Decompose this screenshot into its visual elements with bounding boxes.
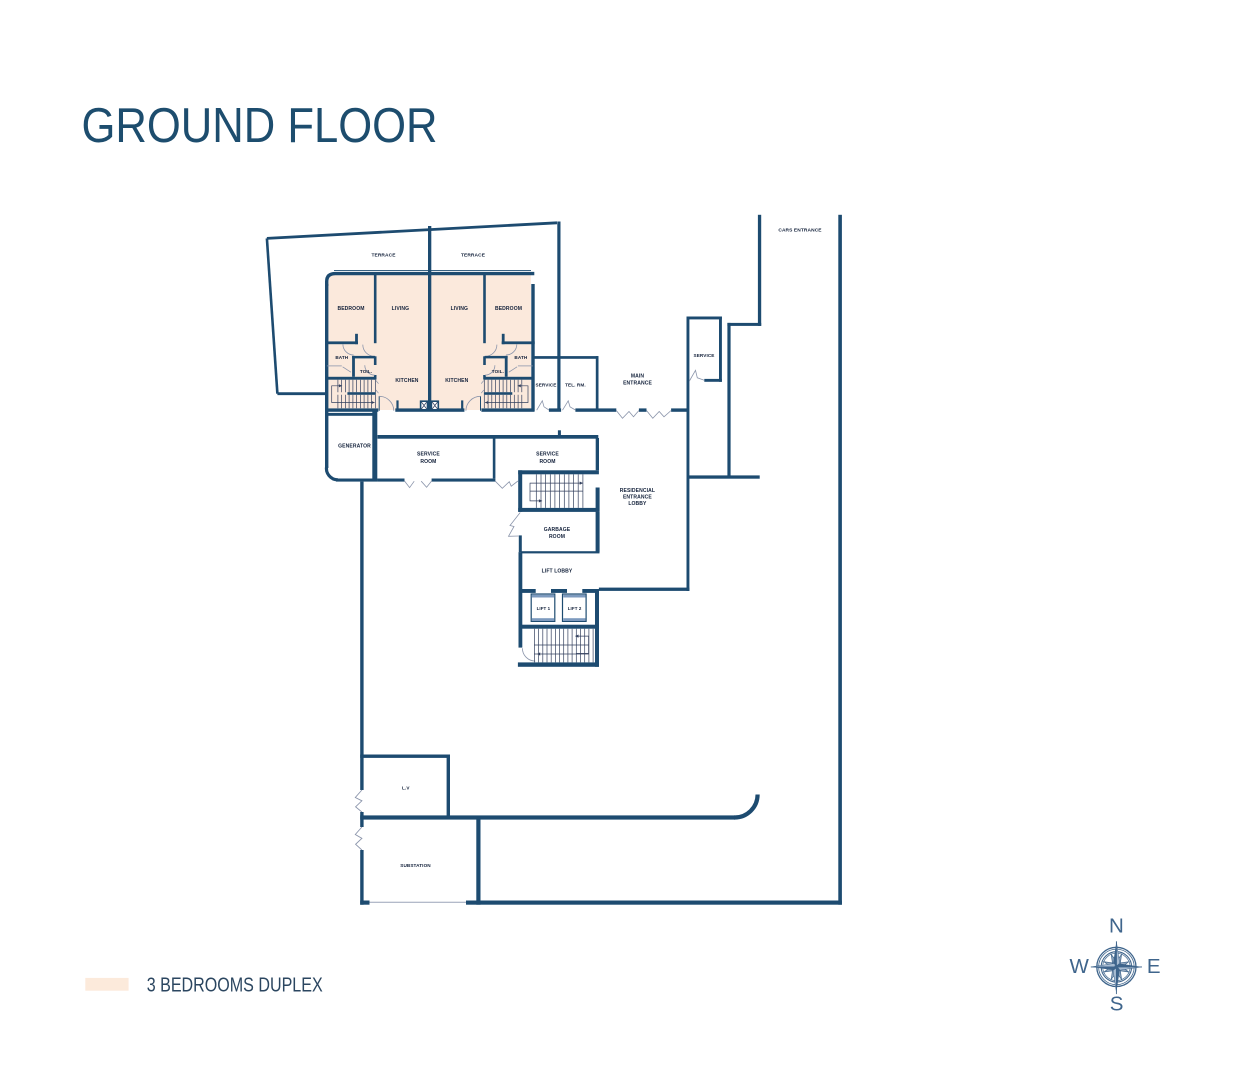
svg-text:TERRACE: TERRACE (371, 252, 396, 258)
svg-text:LIFT LOBBY: LIFT LOBBY (542, 569, 573, 575)
svg-text:SERVICE: SERVICE (536, 382, 557, 387)
svg-text:W: W (1070, 955, 1090, 978)
svg-text:3 BEDROOMS DUPLEX: 3 BEDROOMS DUPLEX (147, 974, 323, 997)
svg-text:ROOM: ROOM (539, 459, 555, 465)
svg-text:SERVICE: SERVICE (536, 452, 559, 458)
svg-text:LIFT 1: LIFT 1 (537, 606, 551, 611)
svg-text:SUBSTATION: SUBSTATION (400, 863, 431, 868)
svg-text:L.V: L.V (402, 786, 410, 791)
svg-text:S: S (1110, 993, 1124, 1016)
svg-text:LIFT 2: LIFT 2 (568, 606, 582, 611)
svg-text:BEDROOM: BEDROOM (337, 306, 364, 312)
svg-text:LIVING: LIVING (451, 306, 468, 312)
svg-text:KITCHEN: KITCHEN (445, 378, 468, 384)
svg-text:MAIN: MAIN (631, 374, 645, 380)
svg-text:BEDROOM: BEDROOM (495, 306, 522, 312)
svg-text:GENERATOR: GENERATOR (338, 443, 371, 449)
svg-text:CARS ENTRANCE: CARS ENTRANCE (778, 228, 822, 234)
svg-text:ENTRANCE: ENTRANCE (623, 381, 652, 387)
svg-text:RESIDENCIAL: RESIDENCIAL (620, 488, 655, 494)
svg-text:LOBBY: LOBBY (628, 501, 647, 507)
svg-text:GARBAGE: GARBAGE (544, 527, 571, 533)
svg-text:ENTRANCE: ENTRANCE (623, 494, 652, 500)
svg-text:SERVICE: SERVICE (694, 353, 715, 358)
svg-text:E: E (1147, 955, 1161, 978)
svg-text:ROOM: ROOM (420, 459, 436, 465)
svg-text:SERVICE: SERVICE (417, 452, 440, 458)
svg-text:BATH: BATH (335, 355, 348, 360)
svg-text:ROOM: ROOM (549, 534, 565, 540)
svg-text:TERRACE: TERRACE (461, 252, 486, 258)
svg-text:TOIL.: TOIL. (492, 369, 504, 374)
svg-text:KITCHEN: KITCHEN (395, 378, 418, 384)
svg-text:TEL. RM.: TEL. RM. (565, 382, 586, 387)
svg-text:TOIL.: TOIL. (360, 369, 372, 374)
svg-text:BATH: BATH (514, 355, 527, 360)
svg-text:LIVING: LIVING (392, 306, 409, 312)
svg-text:GROUND FLOOR: GROUND FLOOR (82, 99, 438, 153)
svg-text:N: N (1109, 915, 1124, 938)
